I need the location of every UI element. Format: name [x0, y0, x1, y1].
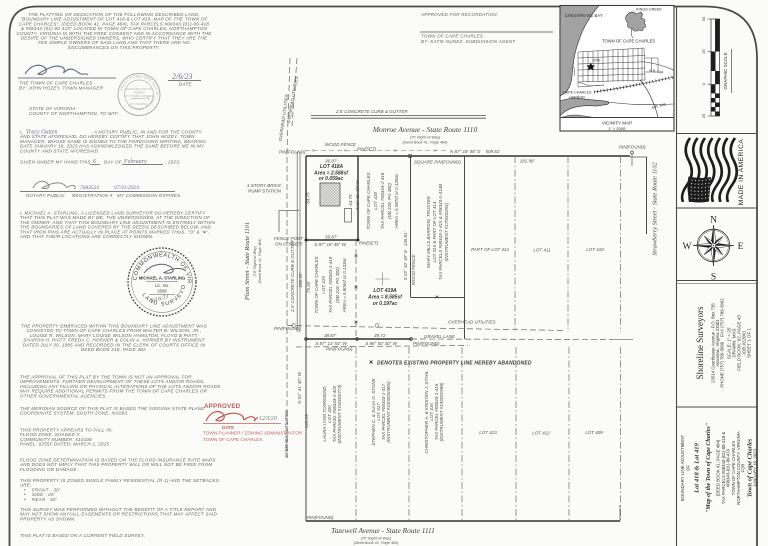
svg-text:OTHER GOVERNMENTAL AGENCIES.: OTHER GOVERNMENTAL AGENCIES.: [20, 393, 107, 398]
svg-text:AND THAT THEIR LOCATIONS ARE C: AND THAT THEIR LOCATIONS ARE CORRECTLY S…: [19, 234, 154, 239]
svg-text:TOWN OF CAPE CHARLES: TOWN OF CAPE CHARLES: [602, 39, 655, 44]
svg-text:LOT 409: LOT 409: [585, 430, 603, 435]
svg-text:JANUARY 18, 2023: JANUARY 18, 2023: [753, 448, 758, 486]
svg-text:OVERHEAD UTILITIES: OVERHEAD UTILITIES: [284, 410, 289, 458]
svg-text:PUMP STATION: PUMP STATION: [248, 188, 282, 193]
svg-text:N 02° 41' 40" W: N 02° 41' 40" W: [297, 371, 302, 404]
svg-text:TOWN OF CAPE CHARLES: TOWN OF CAPE CHARLES: [366, 172, 371, 229]
svg-text:64.75: 64.75: [348, 194, 353, 206]
svg-text:ENCUMBRANCES ON THIS PROPERTY.: ENCUMBRANCES ON THIS PROPERTY.: [68, 45, 160, 50]
svg-text:"Map of the Town of Cape Charl: "Map of the Town of Cape Charles": [706, 423, 712, 513]
svg-text:(DB 218, PG 382): (DB 218, PG 382): [387, 183, 392, 219]
svg-text:N 2° 41' 40" W: N 2° 41' 40" W: [355, 180, 360, 210]
svg-text:36.87': 36.87': [325, 158, 337, 163]
svg-text:07/31/2024: 07/31/2024: [114, 184, 139, 191]
svg-text:GRAVEL LANE: GRAVEL LANE: [424, 334, 456, 339]
svg-text:AREA = 5,587sf or 0.128ac: AREA = 5,587sf or 0.128ac: [394, 173, 399, 229]
svg-text:7683533: 7683533: [80, 185, 100, 191]
svg-text:COUNTY OF NORTHAMPTON, TO WIT:: COUNTY OF NORTHAMPTON, TO WIT:: [29, 111, 119, 116]
svg-text:PIN(FOUND): PIN(FOUND): [413, 341, 440, 346]
svg-text:APPROVED FOR RECORDATION: APPROVED FOR RECORDATION: [420, 12, 497, 17]
svg-text:PHONE (757) 789-3960 FAX (7: PHONE (757) 789-3960 FAX (757) 789-3962: [720, 298, 725, 388]
svg-text:Plum Street - State Route 1101: Plum Street - State Route 1101: [244, 222, 251, 301]
svg-text:SHEET 1 OF 1: SHEET 1 OF 1: [747, 328, 752, 358]
svg-text:COORDINATE SYSTEM, SOUTH ZONE,: COORDINATE SYSTEM, SOUTH ZONE, NAD83.: [20, 411, 129, 416]
svg-text:SQUARE PIN(FOUND): SQUARE PIN(FOUND): [414, 160, 461, 165]
svg-text:S 87° 18' 48" W: S 87° 18' 48" W: [314, 242, 346, 247]
svg-text:OVERHEAD UTILITIES: OVERHEAD UTILITIES: [448, 319, 496, 324]
svg-text:TAX PARCEL #08343-1-418: TAX PARCEL #08343-1-418: [380, 172, 385, 229]
svg-text:ON CORNER: ON CORNER: [275, 241, 303, 246]
svg-text:BY: JOHN HOZEY, TOWN MANAGER: BY: JOHN HOZEY, TOWN MANAGER: [19, 86, 104, 91]
svg-text:BY: KATIE NUNEZ, SUBDIVISION: BY: KATIE NUNEZ, SUBDIVISION AGENT: [421, 39, 516, 44]
svg-text:64.75: 64.75: [306, 192, 311, 204]
svg-text:MADE IN AMERICA: MADE IN AMERICA: [738, 139, 745, 206]
svg-text:2598: 2598: [157, 289, 167, 294]
svg-text:2/6/23: 2/6/23: [172, 72, 192, 81]
svg-text:MICHAEL A. STARLING: MICHAEL A. STARLING: [139, 276, 185, 281]
svg-text:38.87': 38.87': [324, 333, 336, 338]
svg-text:1" = 2000': 1" = 2000': [608, 126, 626, 131]
svg-text:LOT 415 & PART OF LOT 414: LOT 415 & PART OF LOT 414: [432, 201, 437, 262]
svg-text:(INSTRUMENT #100000773): (INSTRUMENT #100000773): [337, 384, 342, 443]
svg-text:DATE: DATE: [222, 425, 234, 430]
svg-text:LOT 419A: LOT 419A: [373, 288, 397, 294]
svg-text:Shoreline Surveyors: Shoreline Surveyors: [695, 306, 705, 379]
svg-text:Lot 418 & Lot 419: Lot 418 & Lot 419: [694, 442, 701, 494]
svg-text:REGISTRATION #: REGISTRATION #: [72, 193, 113, 198]
svg-text:39.71': 39.71': [374, 333, 386, 338]
svg-text:APPROVED: APPROVED: [204, 403, 241, 410]
svg-text:HARBOR: HARBOR: [569, 96, 585, 100]
svg-text:GIVEN UNDER MY HAND THIS: GIVEN UNDER MY HAND THIS: [20, 160, 91, 165]
svg-text:LOT 418: LOT 418: [373, 192, 378, 210]
svg-text:(70' Right-of-Way): (70' Right-of-Way): [361, 536, 392, 540]
svg-text:FENCE POST: FENCE POST: [274, 236, 304, 241]
svg-text:OF VIRGINIA: OF VIRGINIA: [130, 102, 148, 106]
svg-text:(INSTRUMENT #1000000885): (INSTRUMENT #1000000885): [386, 381, 391, 443]
svg-text:(70' Right-of-Way): (70' Right-of-Way): [410, 136, 441, 140]
svg-text:MY COMM. EXPIRES: MY COMM. EXPIRES: [125, 94, 153, 98]
svg-text:PIN(FOUND): PIN(FOUND): [619, 145, 646, 150]
svg-text:S 02° 42' 40" E 135.81': S 02° 42' 40" E 135.81': [403, 232, 408, 281]
svg-text:181.98': 181.98': [520, 159, 535, 164]
svg-text:WOOD FENCE: WOOD FENCE: [325, 142, 357, 147]
svg-text:75.55': 75.55': [306, 281, 311, 293]
svg-text:CAPE CHARLES: CAPE CHARLES: [563, 91, 592, 95]
svg-text:6: 6: [93, 159, 96, 165]
svg-text:280.55': 280.55': [298, 273, 303, 289]
svg-text:DEED BOOK 218, PAGE 382.: DEED BOOK 218, PAGE 382.: [81, 347, 147, 352]
svg-text:12/3/20: 12/3/20: [259, 416, 277, 422]
svg-text:(Deed Book 41, Page 484): (Deed Book 41, Page 484): [403, 140, 449, 144]
svg-text:February: February: [123, 159, 147, 165]
svg-text:Area = 8,585sf: Area = 8,585sf: [367, 295, 403, 301]
svg-text:WOOD FENCE: WOOD FENCE: [411, 254, 416, 286]
svg-text:2.5' CONCRETE CURB & GUTTER: 2.5' CONCRETE CURB & GUTTER: [290, 239, 295, 312]
svg-text:#08343-(01)-00-419: #08343-(01)-00-419: [726, 448, 731, 487]
svg-text:MY COMMISSION EXPIRES: MY COMMISSION EXPIRES: [117, 193, 180, 198]
svg-text:N: N: [710, 216, 717, 226]
svg-text:50: 50: [701, 16, 706, 21]
svg-text:(INSTRUMENT #170000291): (INSTRUMENT #170000291): [444, 202, 449, 261]
svg-text:(Deed Book 41, Page 484): (Deed Book 41, Page 484): [258, 238, 262, 284]
svg-text:TOWN OF CAPE CHARLES: TOWN OF CAPE CHARLES: [203, 437, 263, 442]
svg-text:TAX PARCEL #08343-1-419: TAX PARCEL #08343-1-419: [328, 256, 333, 313]
svg-text:TOWN OF CAPE CHARLES: TOWN OF CAPE CHARLES: [421, 34, 483, 39]
svg-text:LOT 412: LOT 412: [532, 431, 550, 436]
svg-text:NOTARY PUBLIC: NOTARY PUBLIC: [26, 193, 65, 198]
svg-text:THIS PLAT IS BASED ON A CURREN: THIS PLAT IS BASED ON A CURRENT FIELD SU…: [20, 533, 145, 538]
svg-text:25: 25: [701, 49, 706, 54]
svg-text:MARY MILLS BARROW, TRUSTEE: MARY MILLS BARROW, TRUSTEE: [426, 195, 431, 268]
svg-text:PROPERTY AS SHOWN.: PROPERTY AS SHOWN.: [20, 516, 76, 521]
svg-text:PIN(SET): PIN(SET): [359, 241, 379, 246]
svg-text:PIN(FOUND): PIN(FOUND): [279, 149, 306, 154]
svg-text:S 87° 13' 54" W: S 87° 13' 54" W: [315, 341, 347, 346]
svg-text:(INSTRUMENT #190000588): (INSTRUMENT #190000588): [439, 382, 444, 441]
svg-text:DAY OF: DAY OF: [104, 160, 122, 165]
svg-text:GRAPHIC SCALE: GRAPHIC SCALE: [723, 52, 728, 89]
svg-text:2.5' CONCRETE CURB & GUTTER: 2.5' CONCRETE CURB & GUTTER: [335, 109, 408, 114]
svg-text:FLOODING OR DAMAGE.: FLOODING OR DAMAGE.: [20, 467, 78, 472]
svg-text:Tazewell Avenue - State Route: Tazewell Avenue - State Route 1111: [331, 526, 435, 535]
svg-text:DENOTES EXISTING PROPERTY LINE: DENOTES EXISTING PROPERTY LINE HEREBY AB…: [377, 361, 532, 367]
svg-text:PART OF LOT 414: PART OF LOT 414: [471, 247, 509, 252]
svg-text:Monroe Avenue - State Route 11: Monroe Avenue - State Route 1110: [372, 125, 478, 134]
svg-text:PIN(FOUND): PIN(FOUND): [307, 515, 334, 520]
svg-text:• REAR - 40': • REAR - 40': [24, 497, 57, 502]
svg-text:DATE: DATE: [179, 82, 192, 87]
svg-text:SITE: SITE: [593, 59, 602, 63]
svg-text:TAX PARCELS #08343-1-415 & #08: TAX PARCELS #08343-1-415 & #08343-1-414B: [438, 184, 443, 280]
svg-text:THIS PROPERTY IS ZONED SINGLE: THIS PROPERTY IS ZONED SINGLE FAMILY RES…: [20, 478, 219, 483]
svg-text:E: E: [738, 242, 744, 252]
svg-text:VICINITY MAP: VICINITY MAP: [602, 121, 633, 126]
svg-text:PANEL: 0255F DATED: MARCH 2,: PANEL: 0255F DATED: MARCH 2, 2015: [20, 442, 110, 447]
svg-text:KINGS CREEK: KINGS CREEK: [636, 8, 662, 12]
svg-text:LOT 419: LOT 419: [321, 276, 326, 294]
svg-text:LOT 411: LOT 411: [533, 248, 551, 253]
svg-text:AREA = 5,806sf or 0.133ac: AREA = 5,806sf or 0.133ac: [342, 257, 347, 313]
svg-text:W: W: [683, 242, 692, 252]
svg-text:OF: OF: [686, 465, 691, 471]
svg-text:CHESAPEAKE BAY: CHESAPEAKE BAY: [565, 13, 603, 18]
svg-text:or 0.059ac: or 0.059ac: [319, 176, 344, 182]
svg-text:N 87° 18' 48" E 509.61': N 87° 18' 48" E 509.61': [450, 149, 500, 154]
svg-text:Strawberry Street - State Rout: Strawberry Street - State Route 1102: [652, 161, 659, 255]
svg-text:140.09': 140.09': [304, 414, 309, 429]
svg-text:(DEED BOOK 41, PAGE 484): (DEED BOOK 41, PAGE 484): [716, 439, 721, 496]
svg-text:(Deed Book 41, Page 484): (Deed Book 41, Page 484): [354, 541, 400, 545]
svg-text:PIN(FOUND): PIN(FOUND): [326, 346, 353, 351]
svg-text:or 0.197ac: or 0.197ac: [373, 301, 398, 307]
svg-text:LOT 418A: LOT 418A: [320, 164, 344, 170]
svg-text:(70' Right-of-Way): (70' Right-of-Way): [253, 245, 257, 276]
svg-text:PIN(SET): PIN(SET): [357, 147, 377, 152]
svg-text:(DB 218, PG 382): (DB 218, PG 382): [335, 267, 340, 303]
svg-text:LOT 413: LOT 413: [479, 430, 497, 435]
svg-text:S 86° 50' 30" W: S 86° 50' 30" W: [365, 341, 397, 346]
svg-text:COUNTY AND STATE AFORESAID.: COUNTY AND STATE AFORESAID.: [20, 148, 100, 153]
svg-text:, 2023.: , 2023.: [165, 160, 181, 165]
svg-text:FOR: FOR: [741, 463, 746, 472]
svg-text:TOWN OF CAPE CHARLES: TOWN OF CAPE CHARLES: [314, 256, 319, 313]
svg-text:Lic. No.: Lic. No.: [155, 283, 169, 288]
svg-text:39.87': 39.87': [325, 234, 337, 239]
svg-text:BOUNDARY LINE ADJUSTMENT: BOUNDARY LINE ADJUSTMENT: [680, 435, 685, 502]
svg-text:25: 25: [701, 113, 706, 118]
svg-text:1-STORY BRICK: 1-STORY BRICK: [247, 183, 282, 188]
svg-text:PIN(FOUND): PIN(FOUND): [274, 326, 301, 331]
svg-text:LOT 410: LOT 410: [586, 247, 604, 252]
